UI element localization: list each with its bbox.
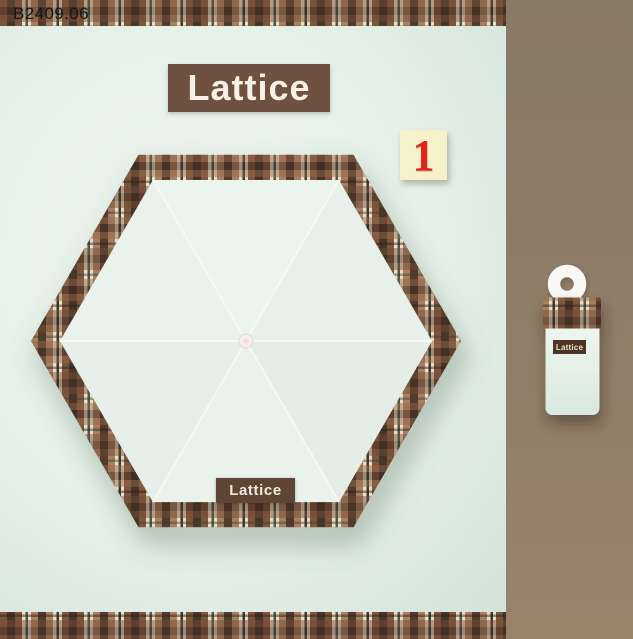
brand-title-tag: Lattice (168, 64, 330, 112)
umbrella-body (546, 322, 600, 415)
umbrella-hexagon (31, 155, 461, 527)
plaid-sleeve (543, 298, 601, 329)
product-code: B2409.06 (13, 3, 89, 25)
center-hub-tip (243, 338, 249, 344)
bottom-plaid-border (0, 612, 506, 639)
folded-brand-text: Lattice (556, 343, 583, 352)
folded-brand-tag: Lattice (553, 340, 586, 354)
product-photo: B2409.06 Lattice 1 Lattice Lattice (0, 0, 633, 639)
option-number-text: 1 (413, 130, 435, 181)
canopy-brand-tag: Lattice (216, 478, 295, 503)
brand-title-text: Lattice (187, 67, 310, 109)
canopy-brand-text: Lattice (229, 482, 282, 499)
ring-handle (554, 271, 580, 297)
option-number-note: 1 (400, 130, 447, 180)
